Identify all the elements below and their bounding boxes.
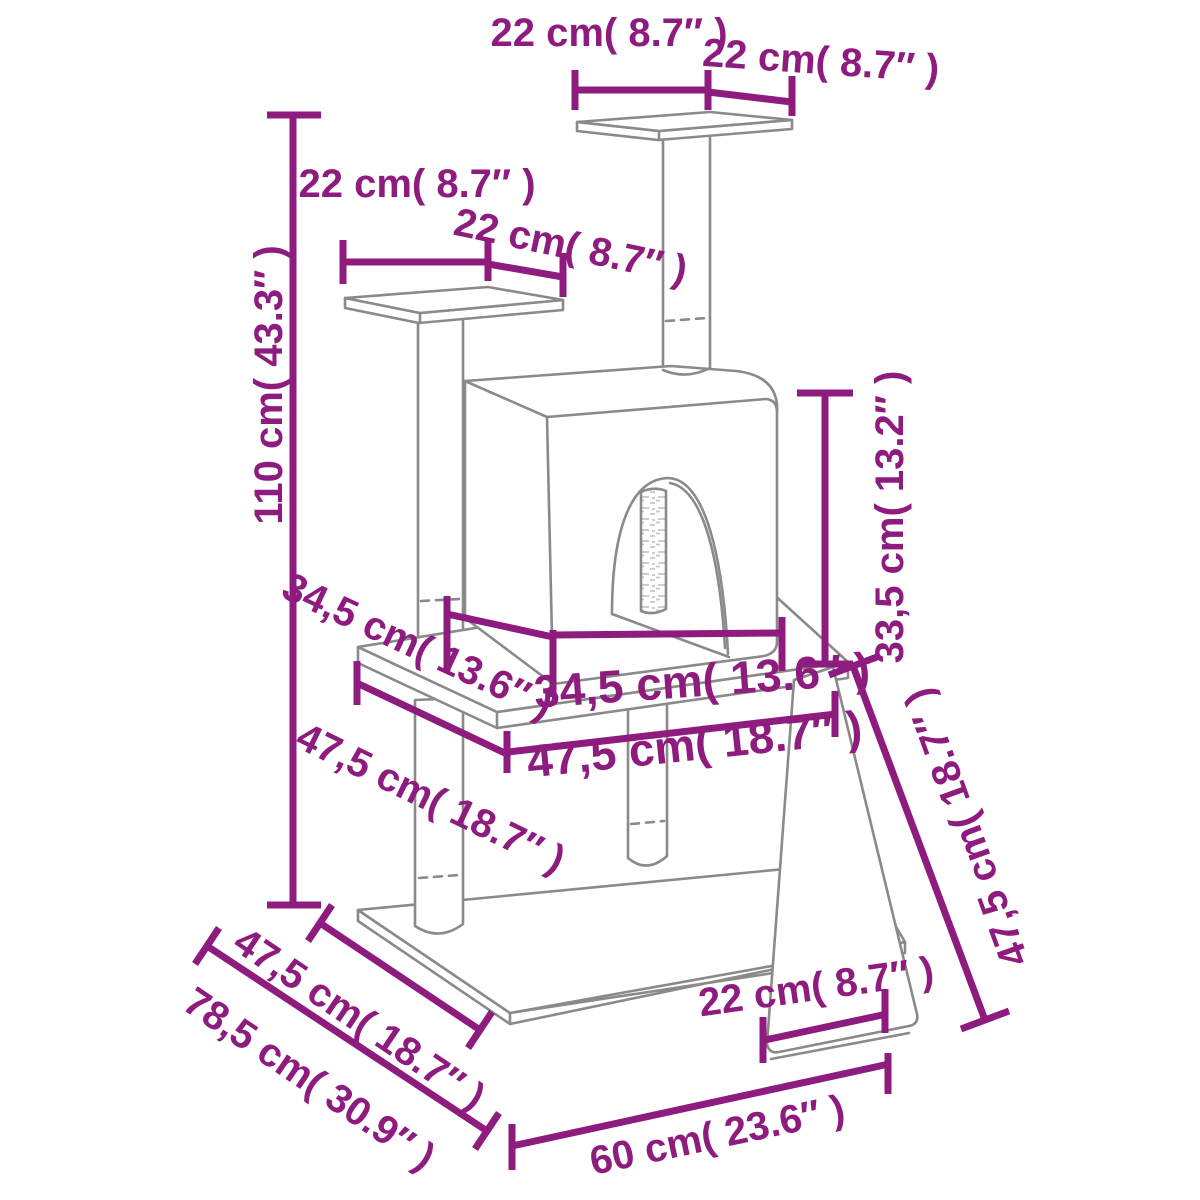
- side-platform: [345, 287, 563, 323]
- label-ramp-length: 47,5 cm( 18.7″ ): [896, 682, 1037, 972]
- top-platform: [577, 112, 792, 140]
- label-side-platform-width: 22 cm( 8.7″ ): [298, 162, 535, 206]
- side-platform-post: [418, 313, 463, 652]
- condo-inner-post: [641, 489, 666, 613]
- cat-tree-dimension-diagram: 22 cm( 8.7″ ) 22 cm( 8.7″ ) 22 cm( 8.7″ …: [0, 0, 1200, 1200]
- dimension-diagram-page: 22 cm( 8.7″ ) 22 cm( 8.7″ ) 22 cm( 8.7″ …: [0, 0, 1200, 1200]
- label-top-platform-width: 22 cm( 8.7″ ): [490, 11, 727, 55]
- label-total-height: 110 cm( 43.3″ ): [247, 245, 291, 524]
- label-condo-height: 33,5 cm( 13.2″ ): [868, 371, 912, 664]
- label-top-platform-depth: 22 cm( 8.7″ ): [701, 31, 941, 91]
